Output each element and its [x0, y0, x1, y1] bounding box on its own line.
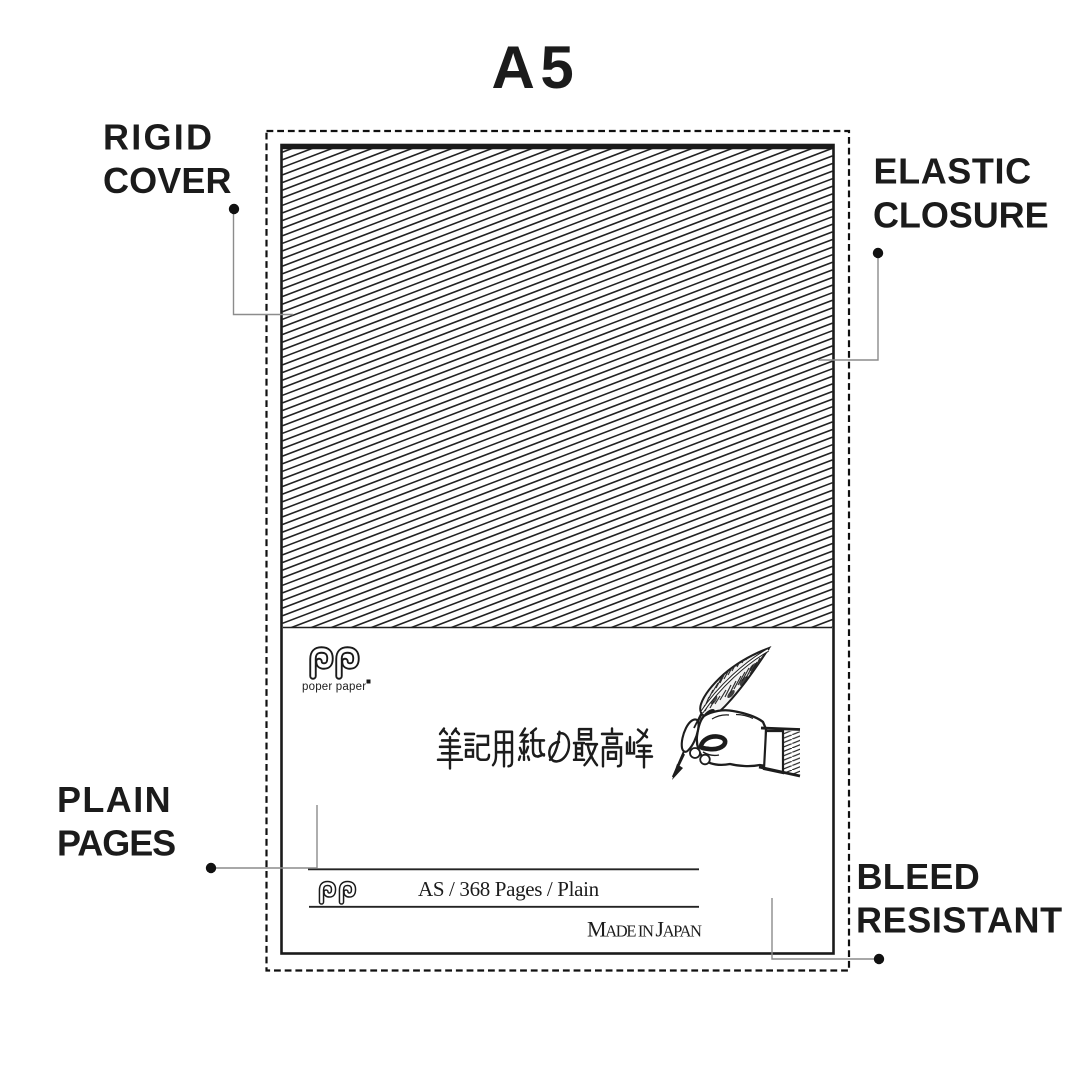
svg-text:A5: A5: [492, 34, 580, 101]
svg-text:COVER: COVER: [103, 160, 232, 201]
svg-text:CLOSURE: CLOSURE: [873, 195, 1049, 236]
svg-text:RESISTANT: RESISTANT: [856, 899, 1063, 940]
svg-text:AS / 368 Pages / Plain: AS / 368 Pages / Plain: [418, 877, 600, 901]
svg-text:poper paper: poper paper: [302, 681, 366, 693]
svg-text:ELASTIC: ELASTIC: [874, 151, 1032, 192]
svg-text:PLAIN: PLAIN: [57, 779, 172, 820]
svg-text:PAGES: PAGES: [57, 822, 175, 863]
svg-text:RIGID: RIGID: [103, 117, 214, 158]
svg-text:BLEED: BLEED: [857, 856, 981, 897]
